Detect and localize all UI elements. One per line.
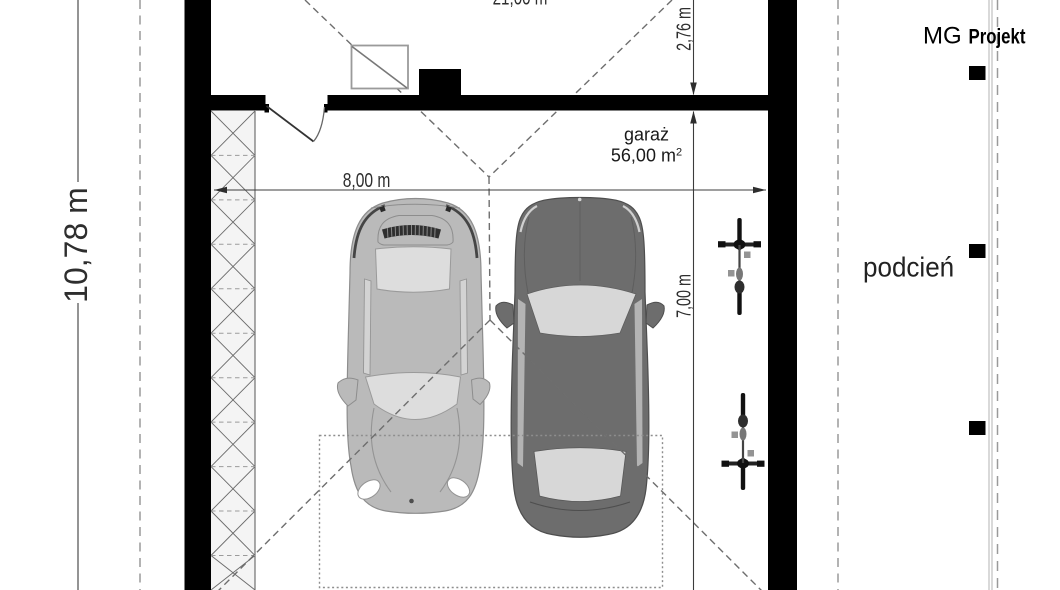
svg-text:8,00 m: 8,00 m — [343, 169, 391, 192]
svg-text:2,76 m: 2,76 m — [672, 7, 695, 51]
svg-text:10,78 m: 10,78 m — [58, 187, 94, 303]
svg-text:Projekt: Projekt — [969, 26, 1026, 49]
svg-text:MG: MG — [923, 23, 962, 50]
svg-text:podcień: podcień — [863, 252, 954, 283]
svg-text:56,00 m2: 56,00 m2 — [611, 146, 682, 166]
svg-text:7,00 m: 7,00 m — [672, 274, 695, 318]
svg-text:garaż: garaż — [624, 125, 669, 145]
svg-text:21,00 m: 21,00 m — [493, 0, 548, 9]
